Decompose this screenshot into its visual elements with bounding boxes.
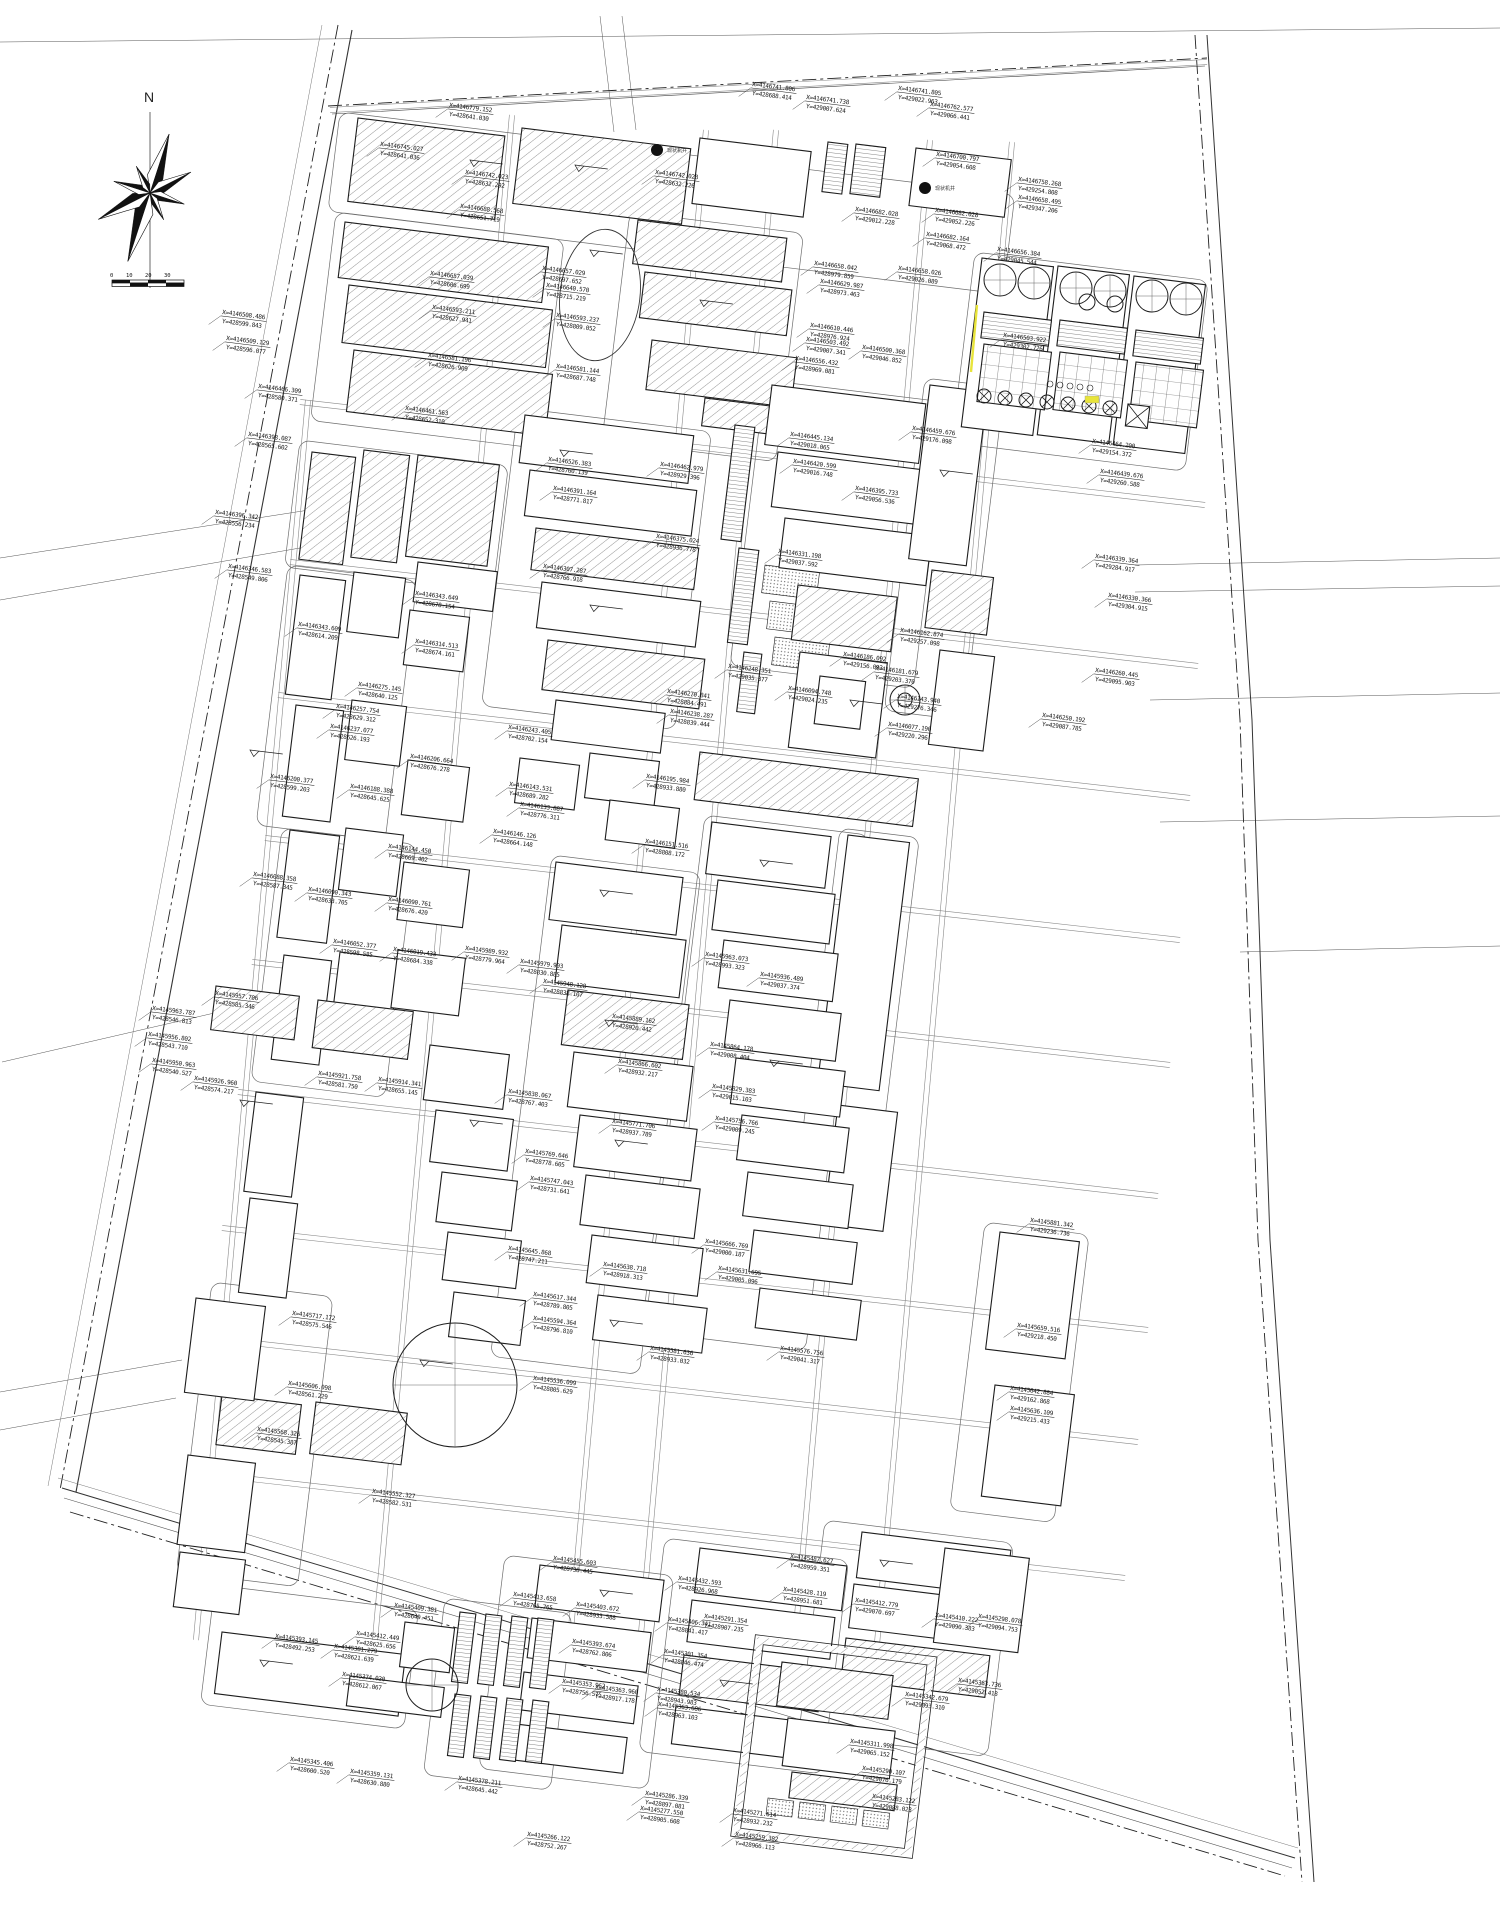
north-label: N — [144, 89, 154, 105]
building-footprint — [536, 582, 700, 647]
building-footprint — [755, 1288, 861, 1340]
coordinate-label: X=4146243.405Y=428702.154 — [495, 723, 554, 747]
building-footprint — [791, 585, 897, 652]
coordinate-label: X=4145914.341Y=428655.145 — [365, 1075, 424, 1099]
building-footprint — [737, 652, 762, 714]
coordinate-label: X=4146346.583Y=428549.806 — [215, 562, 274, 586]
coordinate-label: X=4145747.043Y=428731.641 — [517, 1174, 576, 1198]
coordinate-label: X=4145979.903Y=428830.885 — [507, 957, 566, 981]
coordinate-label: X=4146758.268Y=429254.808 — [1005, 175, 1064, 199]
building-footprint — [551, 700, 665, 753]
coordinate-label: X=4145717.172Y=428575.546 — [279, 1309, 338, 1333]
coordinate-label: X=4146396.342Y=428556.234 — [202, 508, 261, 532]
coordinate-label: X=4145536.099Y=428805.629 — [520, 1374, 579, 1398]
building-footprint — [933, 1548, 1029, 1653]
building-footprint — [830, 1806, 858, 1825]
coordinate-label: X=4146339.364Y=429284.917 — [1082, 552, 1141, 576]
coordinate-label: X=4146466.309Y=428580.371 — [245, 382, 304, 406]
scale-tick-30: 30 — [164, 273, 171, 279]
building-footprint — [449, 1292, 526, 1345]
coordinate-label: X=4145576.756Y=429041.317 — [767, 1344, 826, 1368]
coordinate-label: X=4145769.646Y=428778.605 — [512, 1147, 571, 1171]
well-marker-label: 现状机井 — [667, 147, 687, 154]
coordinate-label: X=4145342.679Y=429093.310 — [892, 1690, 951, 1714]
building-footprint — [177, 1455, 255, 1553]
building-footprint — [473, 1696, 496, 1759]
coordinate-label: X=4146508.486Y=428599.843 — [209, 308, 268, 332]
scale-tick-20: 20 — [145, 273, 152, 279]
coordinate-label: X=4145409.381Y=428649.451 — [381, 1601, 440, 1625]
building-footprint — [580, 1175, 700, 1239]
building-footprint — [639, 272, 792, 336]
coordinate-label: X=4146238.287Y=428839.444 — [657, 707, 716, 731]
survey-grid-lines — [0, 16, 1500, 1430]
building-footprint — [862, 1810, 890, 1829]
building-footprint — [310, 1402, 408, 1465]
coordinate-label: X=4146509.129Y=428596.077 — [213, 334, 272, 358]
building-footprint — [749, 1230, 857, 1284]
coordinate-label: X=4146682.028Y=429012.228 — [842, 205, 901, 229]
coordinate-label: X=4145359.131Y=428630.880 — [337, 1767, 396, 1791]
building-footprint — [633, 220, 787, 282]
street-edge-line — [238, 1089, 1158, 1193]
building-footprint — [347, 572, 406, 638]
building-footprint — [477, 1614, 501, 1685]
well-marker-label: 现状机井 — [935, 185, 955, 192]
building-footprint — [549, 862, 683, 935]
building-footprint — [184, 1298, 265, 1401]
building-footprint — [706, 822, 831, 888]
building-footprint — [822, 142, 848, 194]
coordinate-label: X=4145606.098Y=428561.229 — [275, 1379, 334, 1403]
building-footprint — [721, 425, 755, 542]
coordinate-label: X=4146188.388Y=428645.625 — [337, 782, 396, 806]
building-footprint — [798, 1802, 826, 1821]
coordinate-label: X=4146682.164Y=429068.472 — [913, 230, 972, 254]
coordinate-label: X=4146146.126Y=428664.148 — [480, 827, 539, 851]
building-footprint — [925, 570, 994, 635]
coordinate-label: X=4146500.368Y=429046.852 — [849, 343, 908, 367]
building-footprint — [423, 1045, 509, 1109]
coordinate-label: X=4145950.963Y=428540.527 — [139, 1056, 198, 1080]
building-footprint — [238, 1198, 297, 1298]
coordinate-label: X=4145552.327Y=428582.531 — [359, 1487, 418, 1511]
coordinate-label: X=4145345.406Y=428600.520 — [277, 1755, 336, 1779]
building-footprint — [692, 138, 811, 217]
coordinate-label: X=4146439.676Y=429260.588 — [1087, 467, 1146, 491]
coordinate-label: X=4146741.738Y=429007.624 — [793, 93, 852, 117]
building-footprint — [436, 1172, 518, 1231]
building-footprint — [348, 118, 505, 219]
coordinate-label: X=4146629.987Y=428973.463 — [807, 277, 866, 301]
building-footprint — [244, 1092, 304, 1197]
scale-tick-10: 10 — [126, 273, 133, 279]
coordinate-label: X=4146398.087Y=428565.602 — [235, 430, 294, 454]
scale-tick-0: 0 — [110, 273, 113, 279]
entrance-triangle-icon — [249, 750, 282, 760]
coordinate-label: X=4146658.026Y=429026.089 — [885, 264, 944, 288]
building-footprint — [727, 548, 758, 645]
building-footprint — [299, 452, 356, 565]
building-footprint — [430, 1110, 514, 1171]
entrance-triangle-icon — [589, 250, 622, 260]
building-footprint — [173, 1552, 245, 1615]
coordinate-label: X=4146077.190Y=429220.296 — [875, 720, 934, 744]
coordinate-label: X=4146250.192Y=429087.785 — [1029, 711, 1088, 735]
coordinate-label: X=4145378.211Y=428645.442 — [445, 1774, 504, 1798]
building-footprint — [338, 828, 403, 897]
compass-rose: N — [98, 89, 191, 288]
building-footprint — [712, 880, 835, 944]
site-plan-canvas: N 0 10 20 30 X=4146779.152Y=428641.030X=… — [0, 0, 1500, 1911]
coordinate-label: X=4145594.364Y=428796.810 — [520, 1314, 579, 1338]
coordinate-label: X=4145266.122Y=428752.267 — [514, 1830, 573, 1854]
building-footprint — [351, 450, 410, 563]
building-footprint — [406, 455, 500, 566]
building-footprint — [694, 752, 918, 826]
scale-bar: 0 10 20 30 — [110, 273, 184, 287]
buildings-layer — [173, 118, 1205, 1858]
coordinate-label: X=4146330.366Y=429304.915 — [1095, 591, 1154, 615]
drawing-sheet: N 0 10 20 30 X=4146779.152Y=428641.030X=… — [0, 0, 1500, 1911]
building-footprint — [850, 144, 886, 197]
coordinate-label: X=4145617.344Y=428789.805 — [520, 1290, 579, 1314]
coordinate-label: X=4146260.445Y=429095.903 — [1082, 666, 1141, 690]
building-footprint — [400, 1622, 455, 1673]
building-footprint — [447, 1694, 470, 1757]
street-edge-line — [238, 1095, 1158, 1199]
building-footprint — [397, 862, 470, 928]
coordinate-label: X=4146143.940Y=429276.346 — [884, 692, 943, 716]
